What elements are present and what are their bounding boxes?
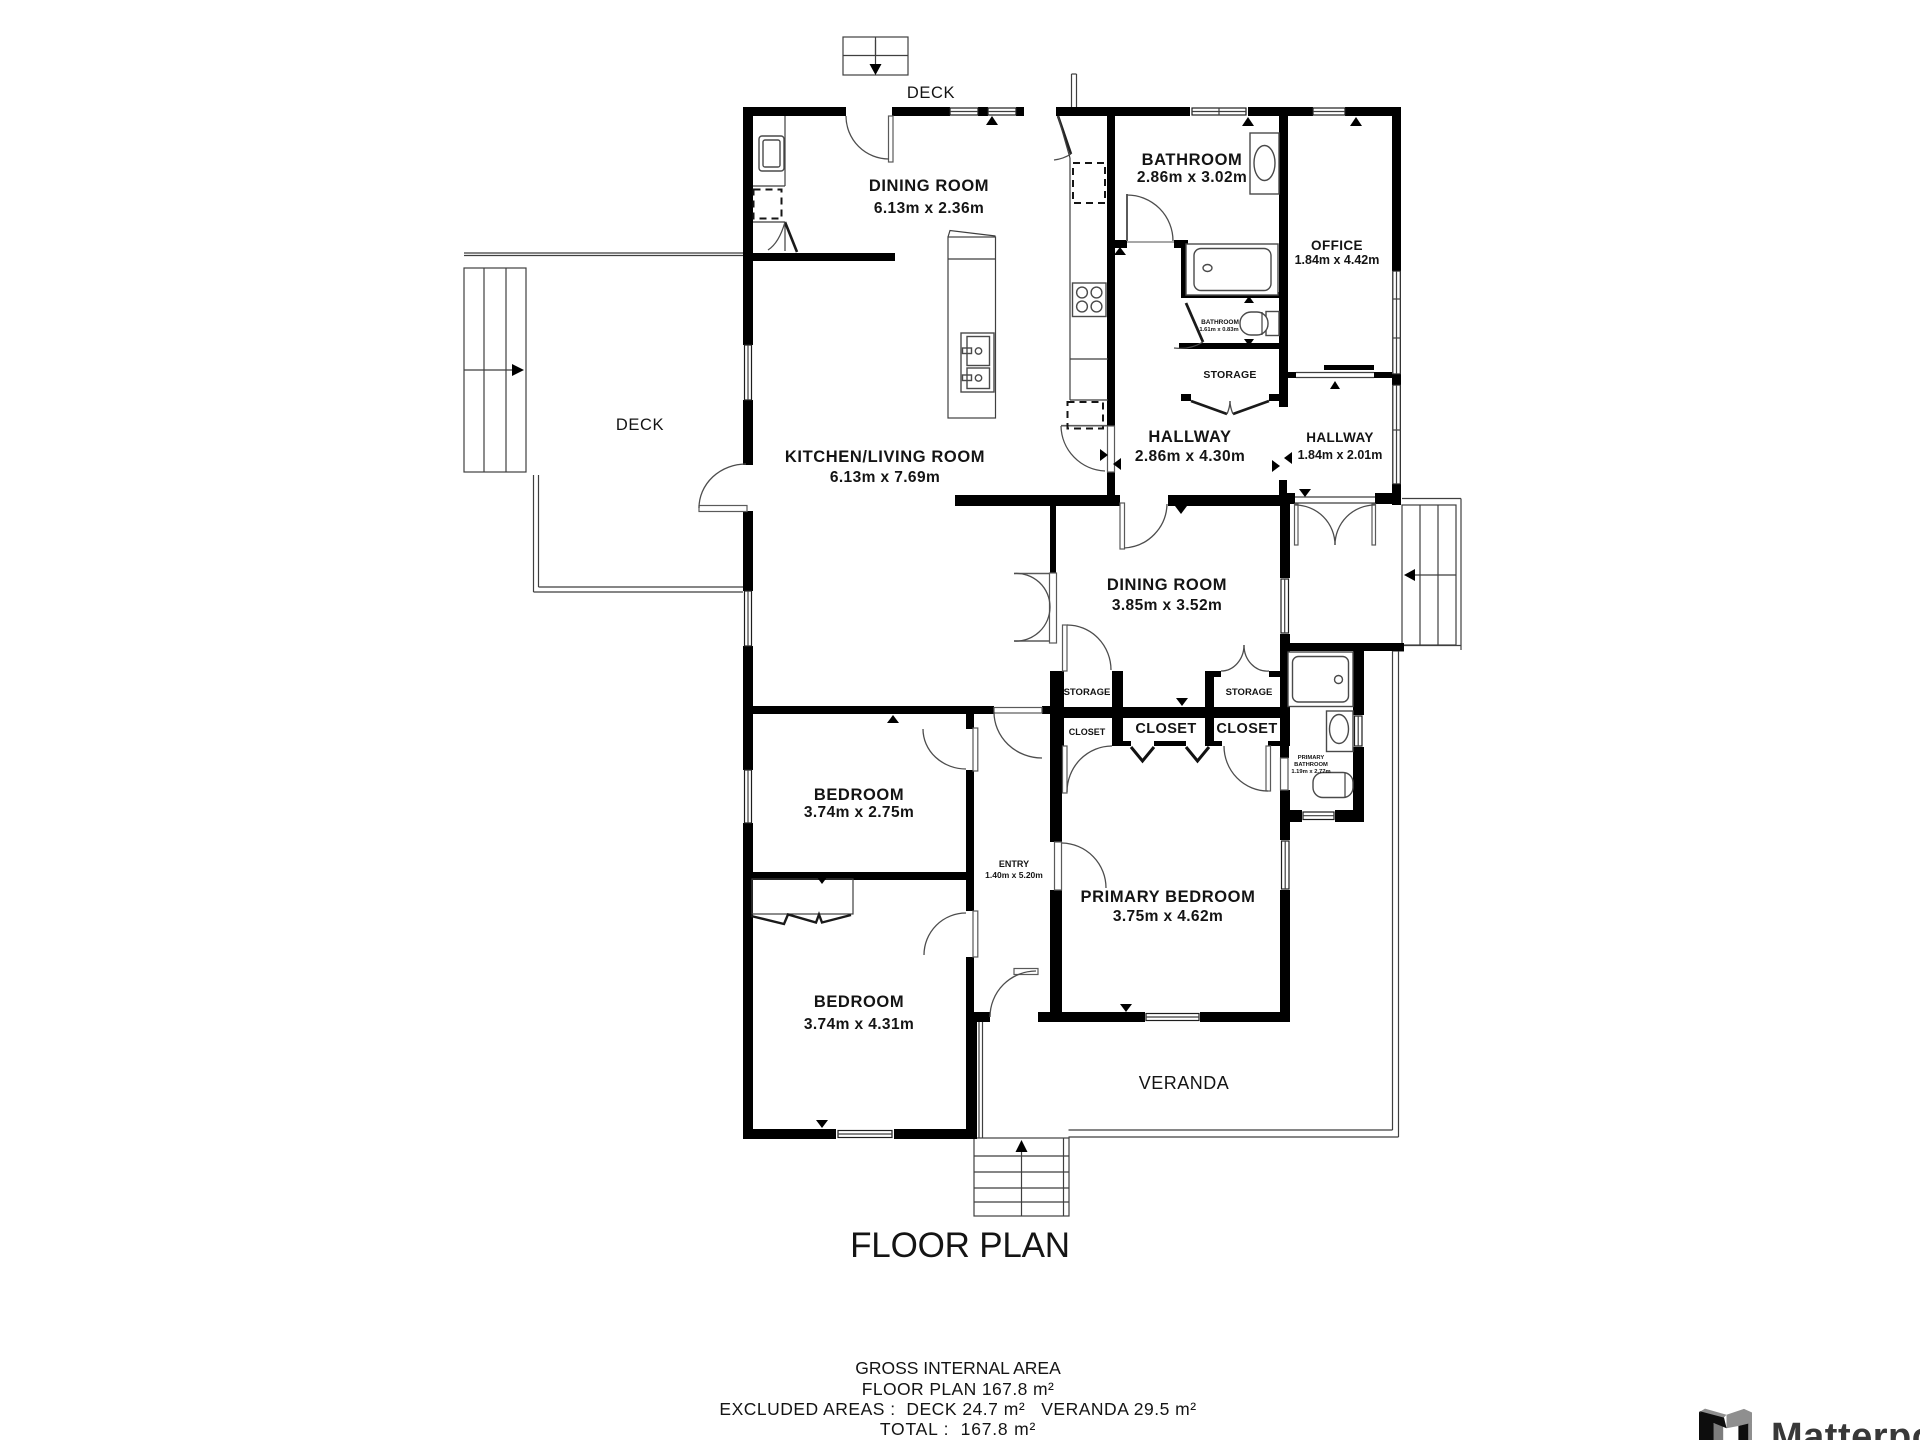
svg-text:BEDROOM: BEDROOM bbox=[814, 786, 904, 804]
svg-text:STORAGE: STORAGE bbox=[1226, 687, 1273, 698]
svg-text:GROSS INTERNAL AREA: GROSS INTERNAL AREA bbox=[855, 1358, 1061, 1378]
svg-text:PRIMARY: PRIMARY bbox=[1298, 755, 1325, 761]
svg-text:HALLWAY: HALLWAY bbox=[1148, 428, 1231, 446]
svg-text:OFFICE: OFFICE bbox=[1311, 238, 1363, 253]
svg-text:2.86m x 3.02m: 2.86m x 3.02m bbox=[1137, 169, 1247, 186]
svg-text:PRIMARY BEDROOM: PRIMARY BEDROOM bbox=[1081, 888, 1256, 906]
svg-text:STORAGE: STORAGE bbox=[1064, 687, 1111, 698]
svg-text:CLOSET: CLOSET bbox=[1069, 727, 1106, 737]
svg-text:3.85m x 3.52m: 3.85m x 3.52m bbox=[1112, 597, 1222, 614]
svg-text:3.75m x 4.62m: 3.75m x 4.62m bbox=[1113, 908, 1223, 925]
svg-text:TOTAL : 167.8 m²: TOTAL : 167.8 m² bbox=[880, 1419, 1036, 1439]
svg-text:ENTRY: ENTRY bbox=[999, 859, 1029, 869]
svg-text:KITCHEN/LIVING ROOM: KITCHEN/LIVING ROOM bbox=[785, 448, 985, 466]
svg-text:1.84m x 2.01m: 1.84m x 2.01m bbox=[1298, 448, 1383, 462]
svg-text:BATHROOM: BATHROOM bbox=[1201, 319, 1239, 326]
svg-text:Matterport: Matterport bbox=[1771, 1416, 1920, 1440]
svg-text:EXCLUDED AREAS : DECK 24.7 m²: EXCLUDED AREAS : DECK 24.7 m² VERANDA 29… bbox=[719, 1399, 1196, 1419]
svg-text:3.74m x 2.75m: 3.74m x 2.75m bbox=[804, 804, 914, 821]
svg-text:3.74m x 4.31m: 3.74m x 4.31m bbox=[804, 1016, 914, 1033]
svg-text:1.40m x 5.20m: 1.40m x 5.20m bbox=[985, 870, 1043, 880]
svg-text:BATHROOM: BATHROOM bbox=[1142, 151, 1243, 169]
svg-text:BATHROOM: BATHROOM bbox=[1294, 762, 1328, 768]
svg-text:1.84m x 4.42m: 1.84m x 4.42m bbox=[1295, 253, 1380, 267]
svg-text:CLOSET: CLOSET bbox=[1135, 721, 1196, 737]
svg-text:6.13m x 7.69m: 6.13m x 7.69m bbox=[830, 469, 940, 486]
svg-text:1.19m x 2.77m: 1.19m x 2.77m bbox=[1291, 769, 1330, 775]
svg-text:FLOOR PLAN 167.8 m²: FLOOR PLAN 167.8 m² bbox=[862, 1379, 1054, 1399]
svg-text:6.13m x 2.36m: 6.13m x 2.36m bbox=[874, 200, 984, 217]
svg-text:DINING ROOM: DINING ROOM bbox=[869, 177, 989, 195]
svg-text:BEDROOM: BEDROOM bbox=[814, 993, 904, 1011]
svg-text:DECK: DECK bbox=[616, 416, 664, 434]
svg-text:DECK: DECK bbox=[907, 84, 955, 102]
svg-text:STORAGE: STORAGE bbox=[1203, 369, 1256, 381]
svg-text:CLOSET: CLOSET bbox=[1216, 721, 1277, 737]
svg-text:HALLWAY: HALLWAY bbox=[1306, 430, 1374, 445]
svg-text:FLOOR PLAN: FLOOR PLAN bbox=[850, 1226, 1070, 1265]
svg-text:2.86m x 4.30m: 2.86m x 4.30m bbox=[1135, 448, 1245, 465]
svg-text:DINING ROOM: DINING ROOM bbox=[1107, 576, 1227, 594]
svg-text:1.61m x 0.83m: 1.61m x 0.83m bbox=[1199, 327, 1238, 333]
svg-text:VERANDA: VERANDA bbox=[1139, 1073, 1230, 1093]
